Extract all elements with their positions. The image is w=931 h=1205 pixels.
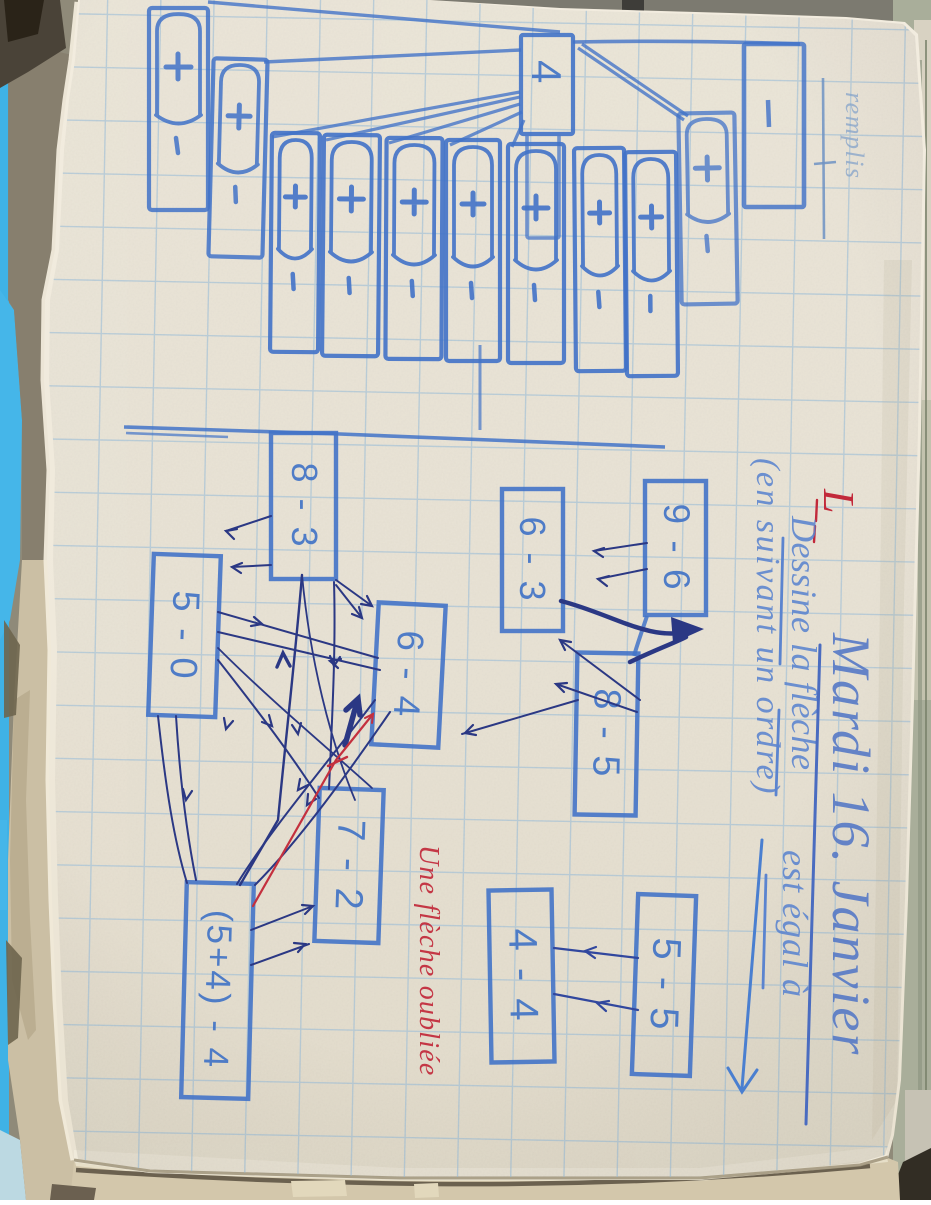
svg-text:7 - 2: 7 - 2	[326, 819, 372, 913]
svg-text:8 - 3: 8 - 3	[284, 462, 325, 549]
svg-text:Mardi 16. Janvier: Mardi 16. Janvier	[821, 632, 881, 1056]
svg-text:4: 4	[523, 60, 570, 83]
svg-text:Une flèche oubliée: Une flèche oubliée	[413, 845, 444, 1077]
svg-text:(en suivant un ordre): (en suivant un ordre)	[749, 458, 786, 796]
svg-text:remplis: remplis	[840, 92, 869, 180]
svg-text:5 - 0: 5 - 0	[161, 590, 206, 682]
svg-text:6 - 4: 6 - 4	[386, 629, 432, 720]
svg-text:(5+4) - 4: (5+4) - 4	[196, 909, 239, 1070]
svg-text:4 - 4: 4 - 4	[500, 928, 546, 1024]
svg-text:6 - 3: 6 - 3	[512, 516, 553, 603]
svg-text:5 - 5: 5 - 5	[641, 937, 688, 1034]
svg-text:9 - 6: 9 - 6	[656, 503, 697, 592]
svg-text:L: L	[814, 488, 863, 513]
